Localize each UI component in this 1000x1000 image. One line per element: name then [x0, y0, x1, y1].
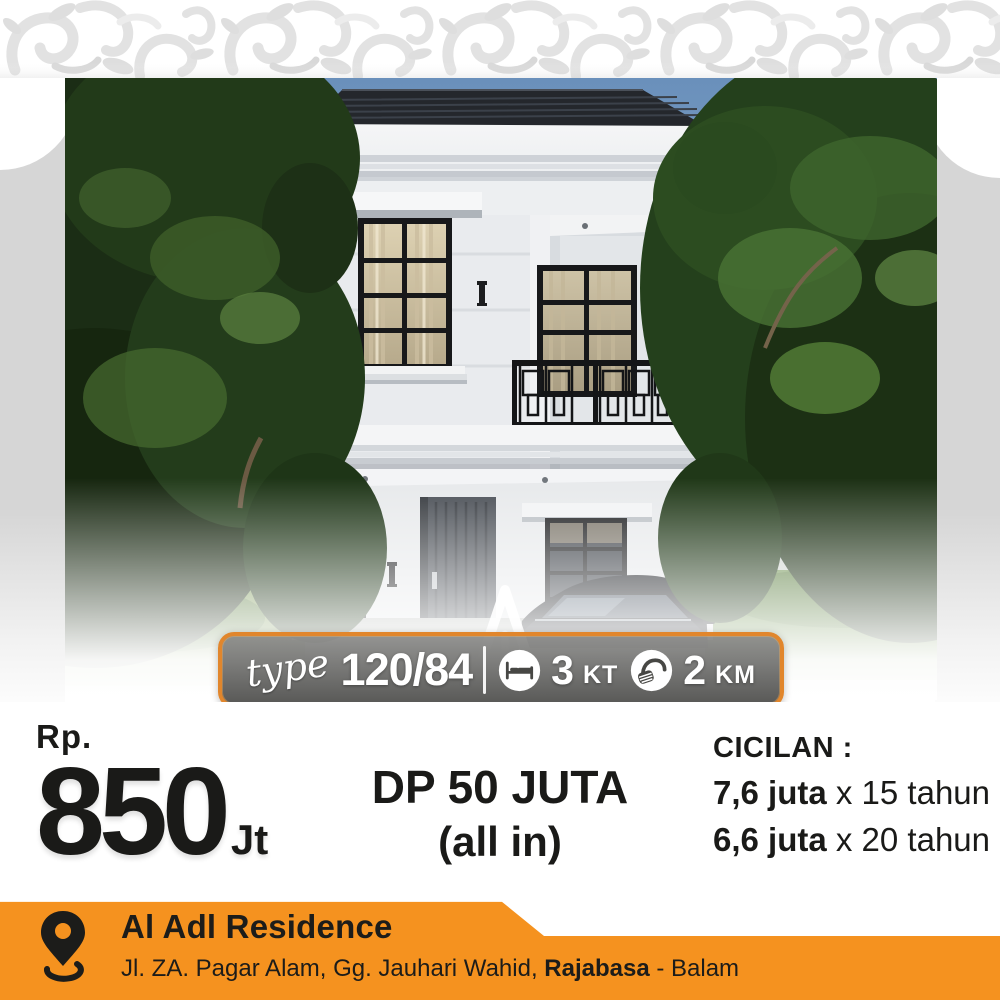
- property-ad-poster: type 120/84 3 KT: [0, 0, 1000, 1000]
- price-amount: 850: [36, 750, 225, 874]
- location-footer-bar: Al Adl Residence Jl. ZA. Pagar Alam, Gg.…: [0, 895, 1000, 1000]
- type-value: 120/84: [341, 644, 473, 696]
- project-address: Jl. ZA. Pagar Alam, Gg. Jauhari Wahid, R…: [121, 955, 739, 983]
- price-block: Rp. 850 Jt: [36, 718, 268, 874]
- price-unit: Jt: [231, 816, 268, 864]
- project-name: Al Adl Residence: [121, 908, 739, 946]
- installment-heading: CICILAN :: [713, 732, 990, 765]
- installment-block: CICILAN : 7,6 juta x 15 tahun 6,6 juta x…: [713, 732, 990, 859]
- photo-left-margin: [0, 78, 65, 718]
- down-payment-line2: (all in): [372, 818, 629, 866]
- shower-icon: [629, 648, 674, 693]
- bedrooms-unit: KT: [583, 661, 618, 690]
- bathrooms-spec: 2 KM: [629, 647, 756, 694]
- down-payment-block: DP 50 JUTA (all in): [372, 760, 629, 866]
- house-render-photo: [65, 78, 937, 700]
- location-pin-icon: [30, 907, 96, 989]
- spec-banner: type 120/84 3 KT: [218, 632, 784, 708]
- installment-option-2: 6,6 juta x 20 tahun: [713, 821, 990, 859]
- damask-pattern-band: [0, 0, 1000, 80]
- bed-icon: [497, 648, 542, 693]
- bathrooms-unit: KM: [715, 661, 756, 690]
- bedrooms-count: 3: [551, 647, 574, 694]
- down-payment-line1: DP 50 JUTA: [372, 760, 629, 814]
- footer-text-block: Al Adl Residence Jl. ZA. Pagar Alam, Gg.…: [121, 908, 739, 983]
- bedrooms-spec: 3 KT: [497, 647, 618, 694]
- banner-divider: [483, 646, 486, 694]
- pricing-section: Rp. 850 Jt DP 50 JUTA (all in) CICILAN :…: [0, 702, 1000, 895]
- bathrooms-count: 2: [683, 647, 706, 694]
- installment-option-1: 7,6 juta x 15 tahun: [713, 774, 990, 812]
- type-script-label: type: [243, 640, 332, 695]
